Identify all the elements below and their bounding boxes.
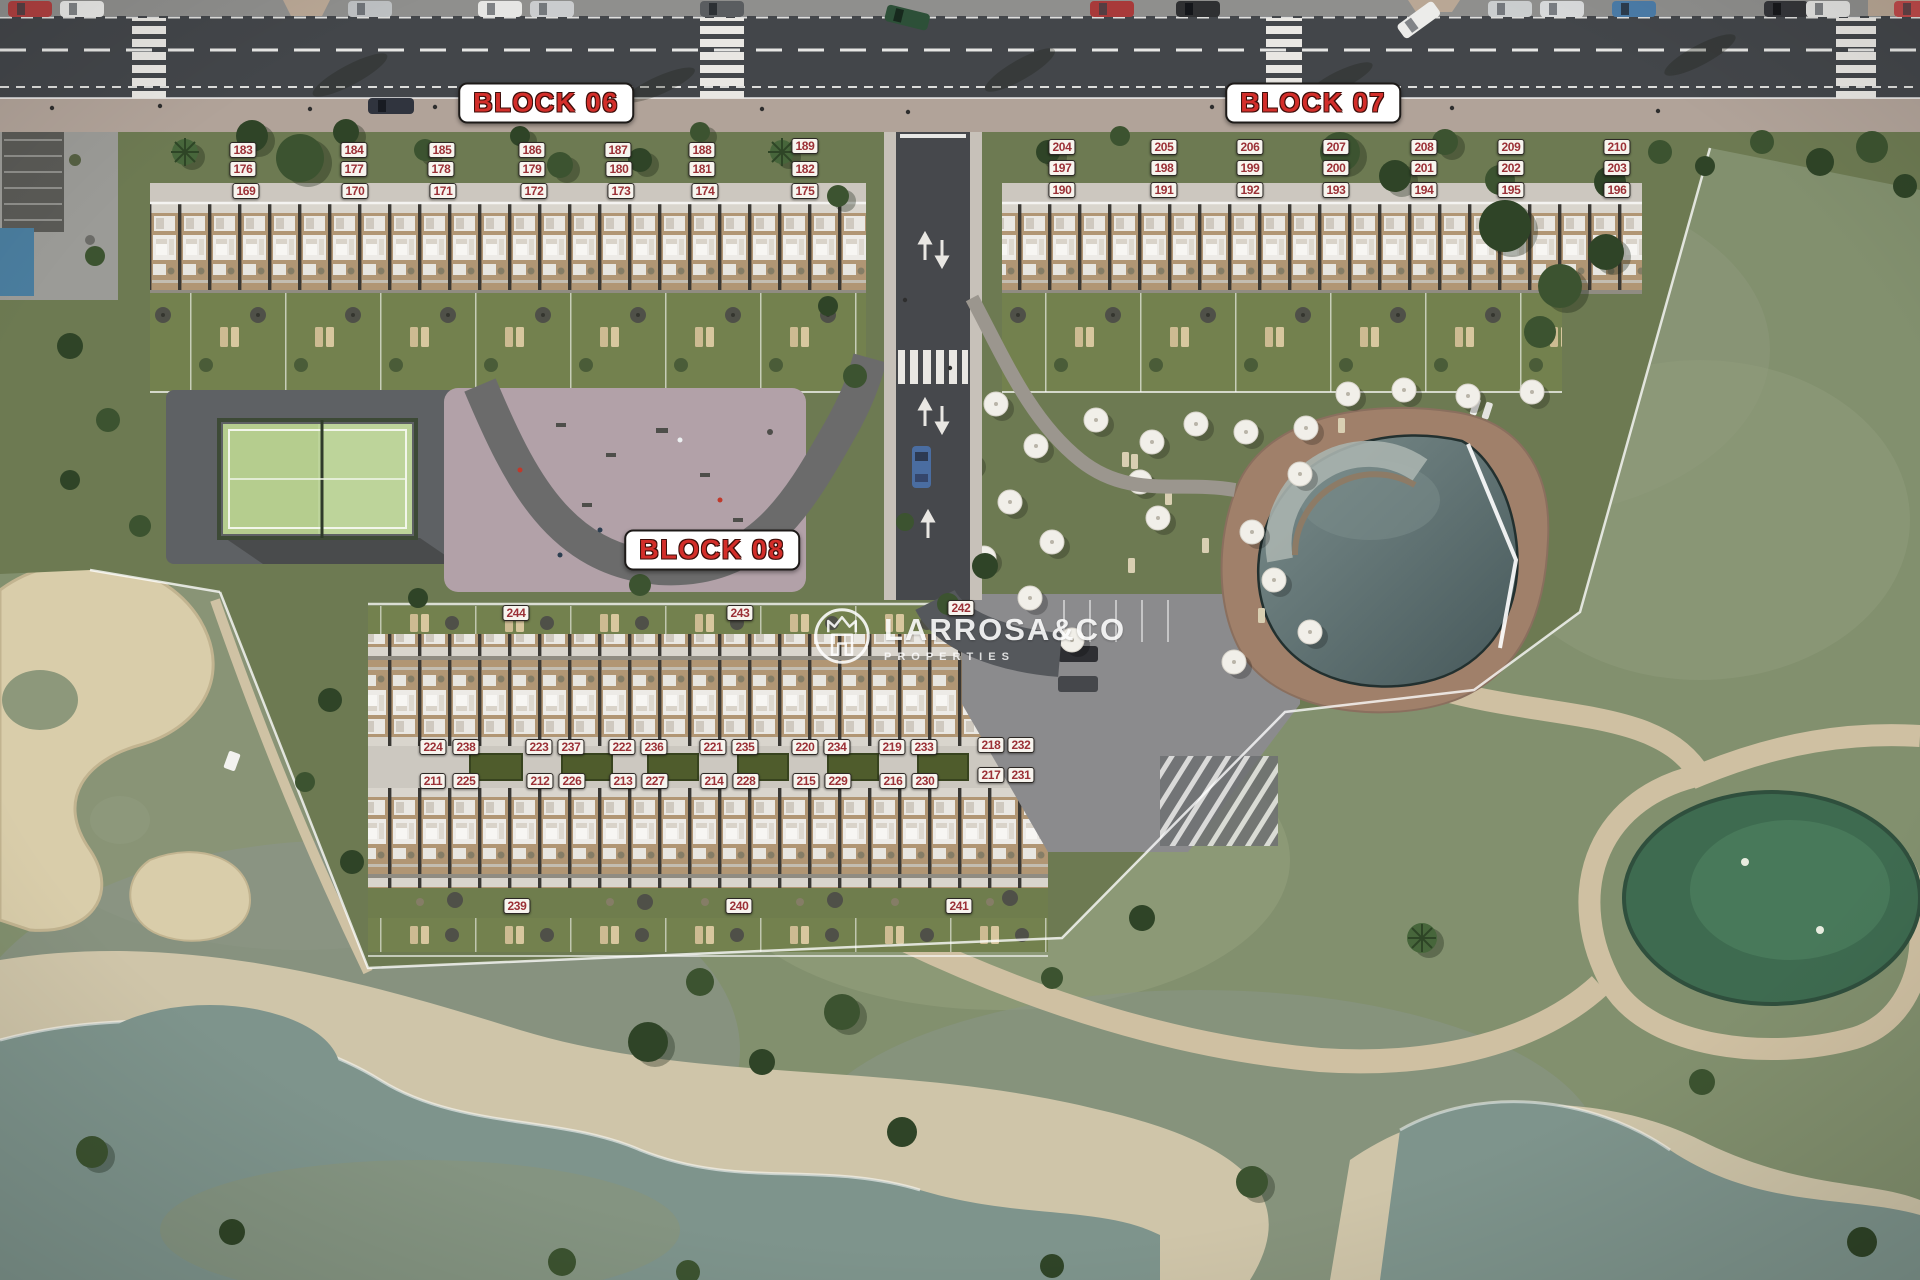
unit-label-196[interactable]: 196 <box>1603 182 1630 198</box>
unit-label-209[interactable]: 209 <box>1497 139 1524 155</box>
unit-label-221[interactable]: 221 <box>699 739 726 755</box>
unit-label-235[interactable]: 235 <box>731 739 758 755</box>
unit-label-220[interactable]: 220 <box>791 739 818 755</box>
unit-label-205[interactable]: 205 <box>1150 139 1177 155</box>
unit-label-layer: BLOCK 0618318418518618718818917617717817… <box>0 0 1920 1280</box>
unit-label-174[interactable]: 174 <box>691 183 718 199</box>
unit-label-185[interactable]: 185 <box>428 142 455 158</box>
unit-label-198[interactable]: 198 <box>1150 160 1177 176</box>
unit-label-173[interactable]: 173 <box>607 183 634 199</box>
unit-label-240[interactable]: 240 <box>725 898 752 914</box>
unit-label-183[interactable]: 183 <box>229 142 256 158</box>
unit-label-178[interactable]: 178 <box>427 161 454 177</box>
unit-label-186[interactable]: 186 <box>518 142 545 158</box>
unit-label-190[interactable]: 190 <box>1048 182 1075 198</box>
unit-label-212[interactable]: 212 <box>526 773 553 789</box>
unit-label-223[interactable]: 223 <box>525 739 552 755</box>
unit-label-213[interactable]: 213 <box>609 773 636 789</box>
unit-label-243[interactable]: 243 <box>726 605 753 621</box>
unit-label-229[interactable]: 229 <box>824 773 851 789</box>
unit-label-188[interactable]: 188 <box>688 142 715 158</box>
unit-label-191[interactable]: 191 <box>1150 182 1177 198</box>
unit-label-224[interactable]: 224 <box>419 739 446 755</box>
unit-label-203[interactable]: 203 <box>1603 160 1630 176</box>
unit-label-170[interactable]: 170 <box>341 183 368 199</box>
unit-label-181[interactable]: 181 <box>688 161 715 177</box>
unit-label-189[interactable]: 189 <box>791 138 818 154</box>
unit-label-222[interactable]: 222 <box>608 739 635 755</box>
unit-label-175[interactable]: 175 <box>791 183 818 199</box>
unit-label-195[interactable]: 195 <box>1497 182 1524 198</box>
unit-label-207[interactable]: 207 <box>1322 139 1349 155</box>
unit-label-218[interactable]: 218 <box>977 737 1004 753</box>
unit-label-231[interactable]: 231 <box>1007 767 1034 783</box>
unit-label-171[interactable]: 171 <box>429 183 456 199</box>
unit-label-225[interactable]: 225 <box>452 773 479 789</box>
unit-label-169[interactable]: 169 <box>232 183 259 199</box>
unit-label-234[interactable]: 234 <box>823 739 850 755</box>
unit-label-214[interactable]: 214 <box>700 773 727 789</box>
unit-label-208[interactable]: 208 <box>1410 139 1437 155</box>
unit-label-199[interactable]: 199 <box>1236 160 1263 176</box>
unit-label-217[interactable]: 217 <box>977 767 1004 783</box>
unit-label-244[interactable]: 244 <box>502 605 529 621</box>
unit-label-211[interactable]: 211 <box>420 773 446 789</box>
unit-label-232[interactable]: 232 <box>1007 737 1034 753</box>
unit-label-219[interactable]: 219 <box>878 739 905 755</box>
title-block07: BLOCK 07 <box>1225 83 1401 124</box>
unit-label-180[interactable]: 180 <box>605 161 632 177</box>
unit-label-236[interactable]: 236 <box>640 739 667 755</box>
title-block08: BLOCK 08 <box>624 530 800 571</box>
unit-label-228[interactable]: 228 <box>732 773 759 789</box>
site-plan: BLOCK 0618318418518618718818917617717817… <box>0 0 1920 1280</box>
unit-label-227[interactable]: 227 <box>641 773 668 789</box>
unit-label-238[interactable]: 238 <box>452 739 479 755</box>
unit-label-204[interactable]: 204 <box>1048 139 1075 155</box>
unit-label-184[interactable]: 184 <box>340 142 367 158</box>
title-block06: BLOCK 06 <box>458 83 634 124</box>
unit-label-193[interactable]: 193 <box>1322 182 1349 198</box>
unit-label-172[interactable]: 172 <box>520 183 547 199</box>
unit-label-241[interactable]: 241 <box>945 898 972 914</box>
unit-label-179[interactable]: 179 <box>518 161 545 177</box>
unit-label-233[interactable]: 233 <box>910 739 937 755</box>
unit-label-194[interactable]: 194 <box>1410 182 1437 198</box>
unit-label-202[interactable]: 202 <box>1497 160 1524 176</box>
unit-label-182[interactable]: 182 <box>791 161 818 177</box>
unit-label-226[interactable]: 226 <box>558 773 585 789</box>
unit-label-177[interactable]: 177 <box>340 161 367 177</box>
unit-label-230[interactable]: 230 <box>911 773 938 789</box>
unit-label-215[interactable]: 215 <box>792 773 819 789</box>
unit-label-197[interactable]: 197 <box>1048 160 1075 176</box>
unit-label-237[interactable]: 237 <box>557 739 584 755</box>
unit-label-239[interactable]: 239 <box>503 898 530 914</box>
unit-label-210[interactable]: 210 <box>1603 139 1630 155</box>
unit-label-216[interactable]: 216 <box>879 773 906 789</box>
unit-label-200[interactable]: 200 <box>1322 160 1349 176</box>
unit-label-176[interactable]: 176 <box>229 161 256 177</box>
unit-label-187[interactable]: 187 <box>604 142 631 158</box>
unit-label-201[interactable]: 201 <box>1410 160 1437 176</box>
unit-label-242[interactable]: 242 <box>947 600 974 616</box>
unit-label-192[interactable]: 192 <box>1236 182 1263 198</box>
unit-label-206[interactable]: 206 <box>1236 139 1263 155</box>
